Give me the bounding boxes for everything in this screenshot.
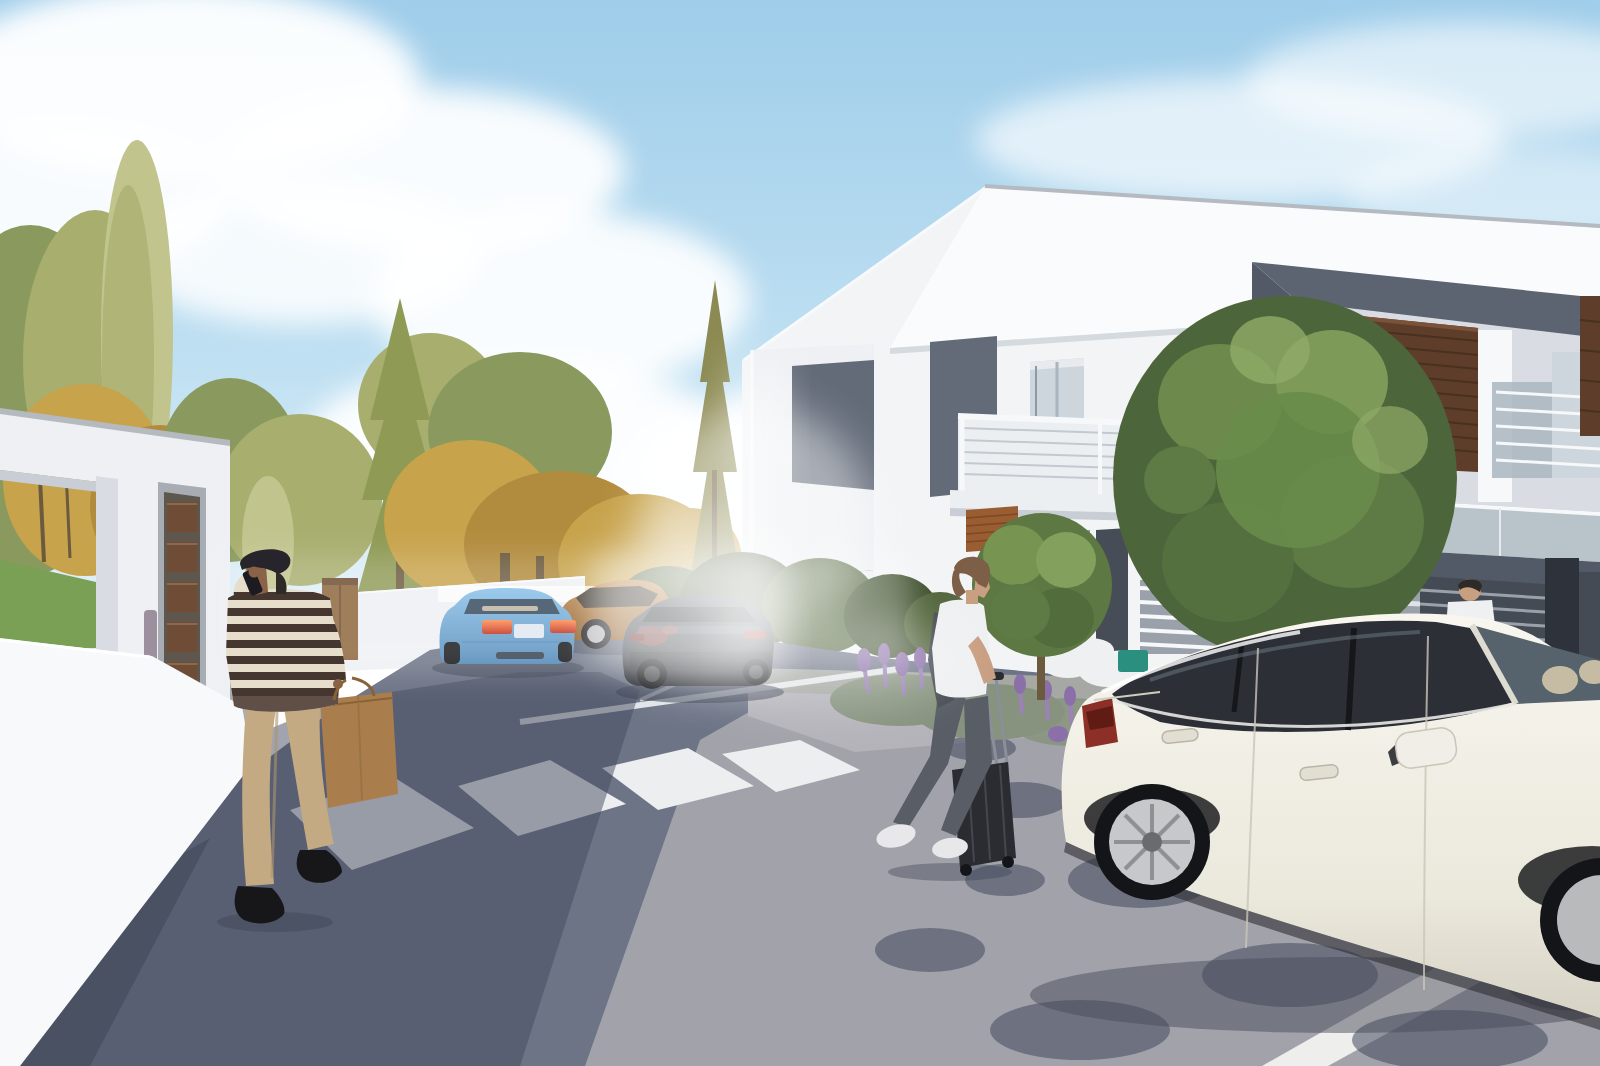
sun-glow: [680, 610, 960, 710]
street-scene-rendering: Residential street architectural renderi…: [0, 0, 1600, 1066]
shopping-bag: [320, 692, 398, 808]
rendered-image: Residential street architectural renderi…: [0, 0, 1600, 1066]
corner-screen-brown: [1580, 296, 1600, 436]
rear-wheel: [1094, 784, 1210, 900]
teal-box: [1118, 650, 1148, 672]
ornamental-tree-large: [1113, 296, 1457, 660]
